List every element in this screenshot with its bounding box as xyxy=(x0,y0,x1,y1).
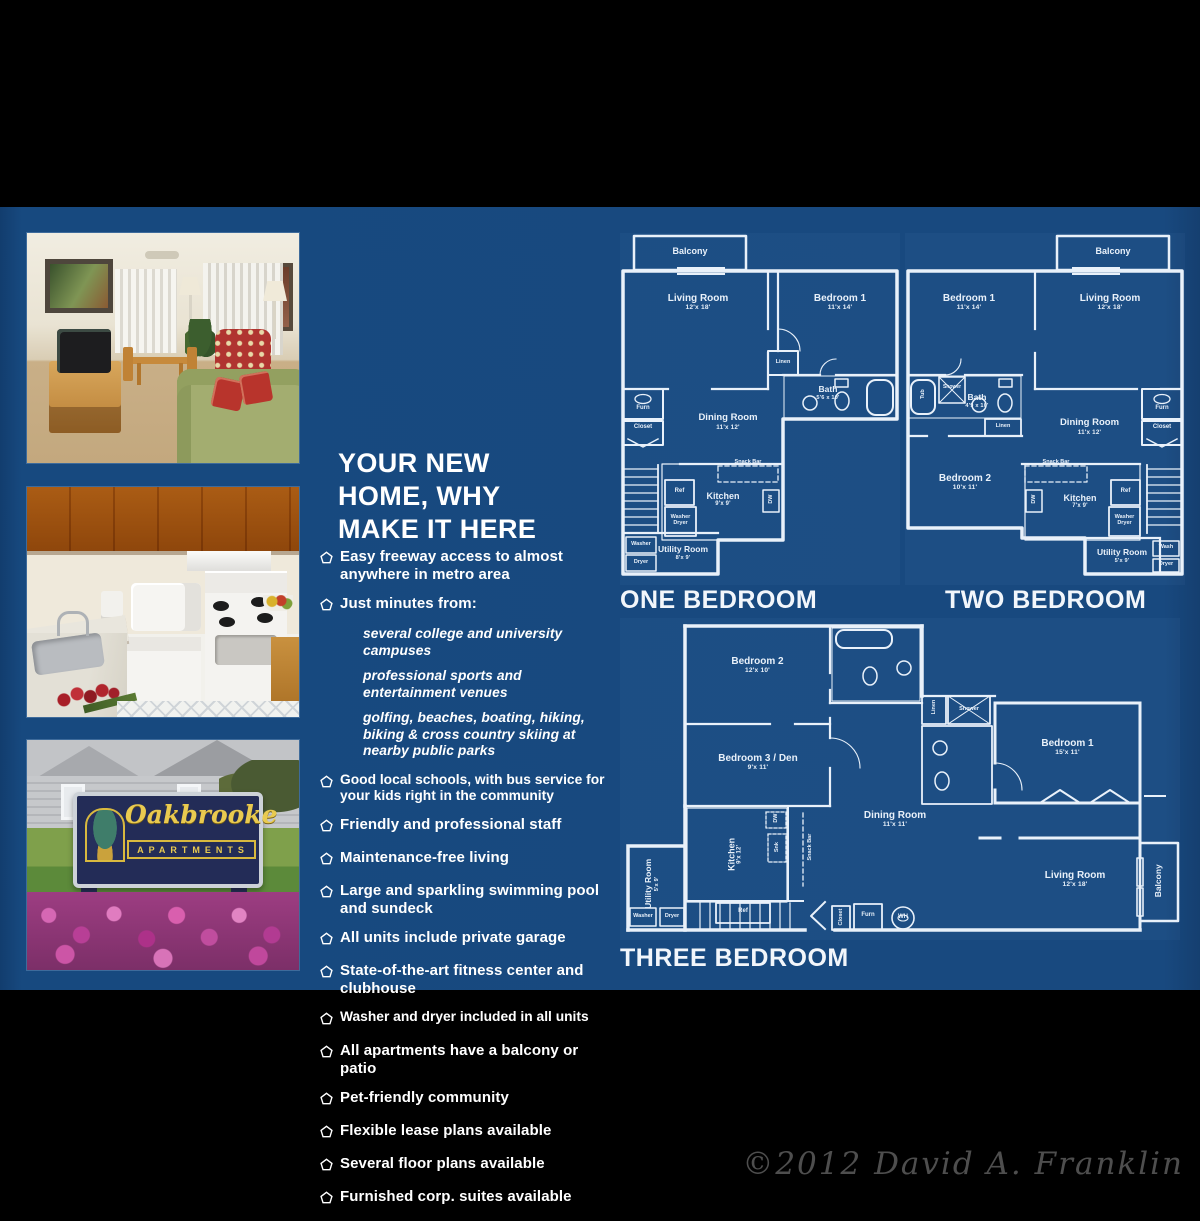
floorplan-one-bedroom: Balcony Living Room12'x 18' Bedroom 111'… xyxy=(620,233,900,585)
pentagon-bullet-icon xyxy=(320,598,333,616)
room-label-shower: Shower xyxy=(935,385,969,391)
room-label-dining: Dining Room11'x 11' xyxy=(825,810,965,829)
sign-board: Oakbrooke APARTMENTS xyxy=(73,792,263,888)
room-label-living-room: Living Room12'x 18' xyxy=(636,293,760,312)
room-label-bedroom1: Bedroom 111'x 14' xyxy=(913,293,1025,312)
room-label-washer: Washer xyxy=(630,913,656,919)
room-label-furn: Furn xyxy=(623,405,663,412)
feature-item: Flexible lease plans available xyxy=(320,1122,608,1143)
room-label-closet: Closet xyxy=(1142,424,1182,431)
floorplan-three-bedroom: Bedroom 212'x 10' Bedroom 3 / Den9'x 11'… xyxy=(620,618,1180,940)
feature-subitem: several college and university campuses xyxy=(363,626,608,659)
pentagon-bullet-icon xyxy=(320,1125,333,1143)
features-list: Easy freeway access to almost anywhere i… xyxy=(320,548,608,1221)
upper-cabinets xyxy=(27,487,299,551)
room-label-dining: Dining Room11'x 12' xyxy=(678,413,778,431)
feature-subitem: professional sports and entertainment ve… xyxy=(363,668,608,701)
feature-item: Maintenance-free living xyxy=(320,849,608,870)
feature-item: State-of-the-art fitness center and club… xyxy=(320,962,608,997)
room-label-bath: Bath5'6 x 10' xyxy=(798,385,858,401)
feature-item: Large and sparkling swimming pool and su… xyxy=(320,882,608,917)
room-label-linen: Linen xyxy=(931,687,937,727)
ceiling-fan xyxy=(145,251,179,259)
room-label-kitchen: Kitchen9'x 9' xyxy=(690,491,756,508)
room-label-ref: Ref xyxy=(1111,488,1140,495)
room-label-utility: Utility Room5'x 9' xyxy=(644,844,660,924)
brochure-page: { "brand": { "sign_name": "Oakbrooke", "… xyxy=(0,0,1200,1200)
photo-entrance-sign: Oakbrooke APARTMENTS xyxy=(27,740,299,970)
room-label-snack-bar: Snack Bar xyxy=(807,817,813,877)
pentagon-bullet-icon xyxy=(320,1191,333,1209)
feature-item: Washer and dryer included in all units xyxy=(320,1009,608,1030)
framed-art xyxy=(45,259,113,313)
television xyxy=(57,329,111,373)
room-label-closet: Closet xyxy=(838,903,844,931)
room-label-kitchen: Kitchen9'x 12' xyxy=(727,816,744,892)
table-lamp-pole xyxy=(273,299,276,339)
headline-line3: MAKE IT HERE xyxy=(338,513,608,546)
room-label-bath: Bath4'9 x 10' xyxy=(947,393,1007,409)
faucet xyxy=(57,611,89,636)
room-label-dryer: Dryer xyxy=(1153,561,1179,567)
room-label-furn: Furn xyxy=(1142,405,1182,412)
caption-three-bedroom: THREE BEDROOM xyxy=(620,944,849,973)
pentagon-bullet-icon xyxy=(320,1092,333,1110)
room-label-dryer: Dryer xyxy=(660,913,684,919)
red-pillow xyxy=(239,371,274,406)
room-label-bedroom2: Bedroom 212'x 10' xyxy=(700,656,815,675)
feature-item: Furnished corp. suites available xyxy=(320,1188,608,1209)
room-label-dw: DW xyxy=(773,808,779,828)
room-label-snack-bar: Snack Bar xyxy=(1025,459,1087,465)
building-roof xyxy=(33,746,145,780)
fruit-bowl xyxy=(263,595,293,611)
microwave xyxy=(131,583,201,631)
room-label-balcony: Balcony xyxy=(634,246,746,256)
feature-subitem: golfing, beaches, boating, hiking, bikin… xyxy=(363,710,608,760)
caption-one-bedroom: ONE BEDROOM xyxy=(620,586,817,615)
oak-tree-logo-icon xyxy=(85,808,125,862)
room-label-bedroom2: Bedroom 210'x 11' xyxy=(910,473,1020,492)
pentagon-bullet-icon xyxy=(320,1045,333,1077)
room-label-ref: Ref xyxy=(665,488,694,495)
pentagon-bullet-icon xyxy=(320,1158,333,1176)
feature-item: Easy freeway access to almost anywhere i… xyxy=(320,548,608,583)
photo-living-room xyxy=(27,233,299,463)
caption-two-bedroom: TWO BEDROOM xyxy=(945,586,1146,615)
pentagon-bullet-icon xyxy=(320,965,333,997)
room-label-linen: Linen xyxy=(768,359,798,365)
room-label-furn: Furn xyxy=(854,912,882,919)
room-label-bedroom1: Bedroom 111'x 14' xyxy=(788,293,892,312)
room-label-bedroom1: Bedroom 115'x 11' xyxy=(1005,738,1130,757)
pentagon-bullet-icon xyxy=(320,885,333,917)
headline-line2: HOME, WHY xyxy=(338,480,608,513)
photographer-credit: ©2012 David A. Franklin xyxy=(742,1146,1184,1182)
flower-bed xyxy=(27,892,299,970)
room-label-dw: DW xyxy=(1031,489,1037,509)
pentagon-bullet-icon xyxy=(320,852,333,870)
feature-item: Friendly and professional staff xyxy=(320,816,608,837)
room-label-bedroom3-den: Bedroom 3 / Den9'x 11' xyxy=(702,753,814,772)
room-label-snack-bar: Snack Bar xyxy=(718,459,778,465)
room-label-utility: Utility Room8'x 9' xyxy=(650,545,716,561)
feature-item: Just minutes from: xyxy=(320,595,608,616)
room-label-living-room: Living Room12'x 18' xyxy=(1015,870,1135,889)
feature-item: Good local schools, with bus service for… xyxy=(320,772,608,804)
pentagon-bullet-icon xyxy=(320,775,333,804)
room-label-shower: Shower xyxy=(948,706,990,712)
headline-line1: YOUR NEW xyxy=(338,447,608,480)
room-label-snk: Snk xyxy=(774,838,780,856)
room-label-balcony: Balcony xyxy=(1154,841,1164,921)
room-label-wh: WH xyxy=(892,914,914,921)
room-label-kitchen: Kitchen7'x 9' xyxy=(1045,493,1115,510)
pentagon-bullet-icon xyxy=(320,932,333,950)
room-label-washer-dryer: Washer Dryer xyxy=(665,514,696,526)
sign-name: Oakbrooke xyxy=(125,800,253,829)
room-label-utility: Utility Room5'x 9' xyxy=(1087,548,1157,564)
tile-floor xyxy=(117,701,299,717)
feature-item: Pet-friendly community xyxy=(320,1089,608,1110)
room-label-living-room: Living Room12'x 18' xyxy=(1045,293,1175,312)
pentagon-bullet-icon xyxy=(320,1012,333,1030)
room-label-dw: DW xyxy=(768,489,774,509)
pentagon-bullet-icon xyxy=(320,551,333,583)
room-label-ref: Ref xyxy=(716,908,770,915)
room-label-linen: Linen xyxy=(985,423,1021,429)
photo-kitchen xyxy=(27,487,299,717)
floorplan-two-bedroom: Balcony Bedroom 111'x 14' Living Room12'… xyxy=(905,233,1185,585)
room-label-balcony: Balcony xyxy=(1057,246,1169,256)
room-label-closet: Closet xyxy=(623,424,663,431)
window-blinds-left xyxy=(115,269,177,353)
feature-item: All apartments have a balcony or patio xyxy=(320,1042,608,1077)
room-label-washer: Washer xyxy=(626,541,656,547)
range-hood xyxy=(187,551,271,571)
room-label-wash: Wash xyxy=(1153,544,1179,550)
floor-lamp-shade xyxy=(179,277,201,295)
headline: YOUR NEW HOME, WHY MAKE IT HERE xyxy=(338,447,608,546)
feature-item: All units include private garage xyxy=(320,929,608,950)
pentagon-bullet-icon xyxy=(320,819,333,837)
feature-sublist: several college and university campuses … xyxy=(363,626,608,760)
room-label-dining: Dining Room11'x 12' xyxy=(1037,418,1142,436)
sign-subtitle: APARTMENTS xyxy=(127,840,256,859)
room-label-tub: Tub xyxy=(920,381,926,407)
room-label-dryer: Dryer xyxy=(626,559,656,565)
room-label-washer-dryer: Washer Dryer xyxy=(1109,514,1140,526)
feature-item: Several floor plans available xyxy=(320,1155,608,1176)
